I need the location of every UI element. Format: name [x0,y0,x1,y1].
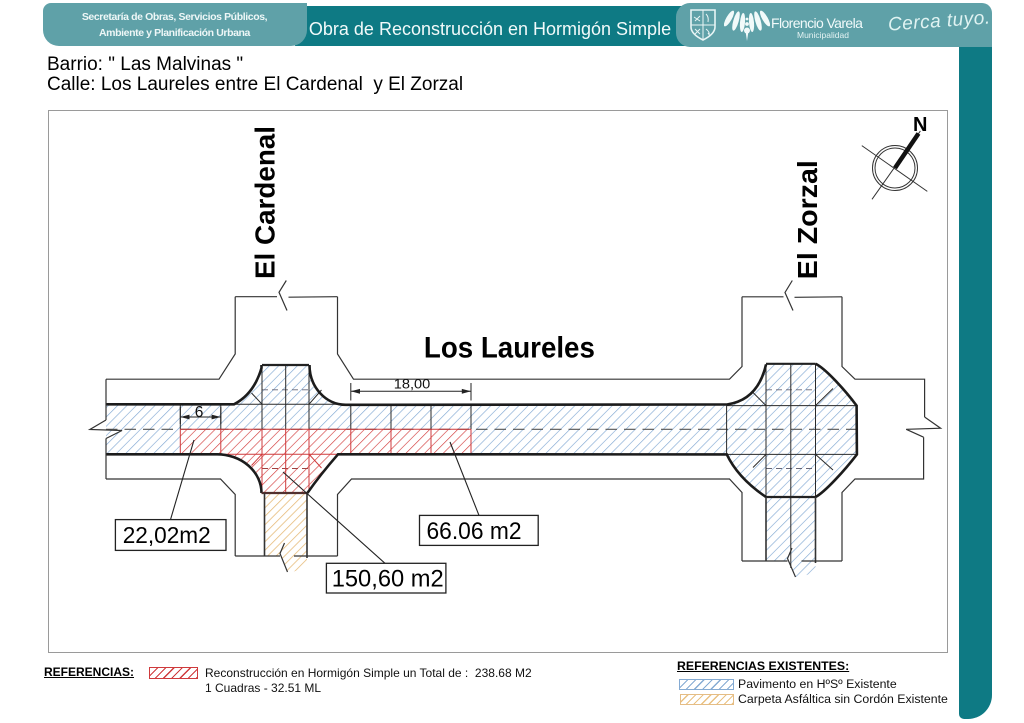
svg-text:N: N [913,114,927,136]
svg-text:6: 6 [195,404,204,421]
svg-text:El Zorzal: El Zorzal [792,160,823,279]
svg-text:150,60 m2: 150,60 m2 [332,566,444,593]
svg-text:El Cardenal: El Cardenal [250,126,281,279]
svg-text:18,00: 18,00 [394,377,431,392]
svg-text:66.06 m2: 66.06 m2 [427,518,522,545]
svg-text:22,02m2: 22,02m2 [123,522,211,548]
svg-text:Los Laureles: Los Laureles [424,332,595,365]
